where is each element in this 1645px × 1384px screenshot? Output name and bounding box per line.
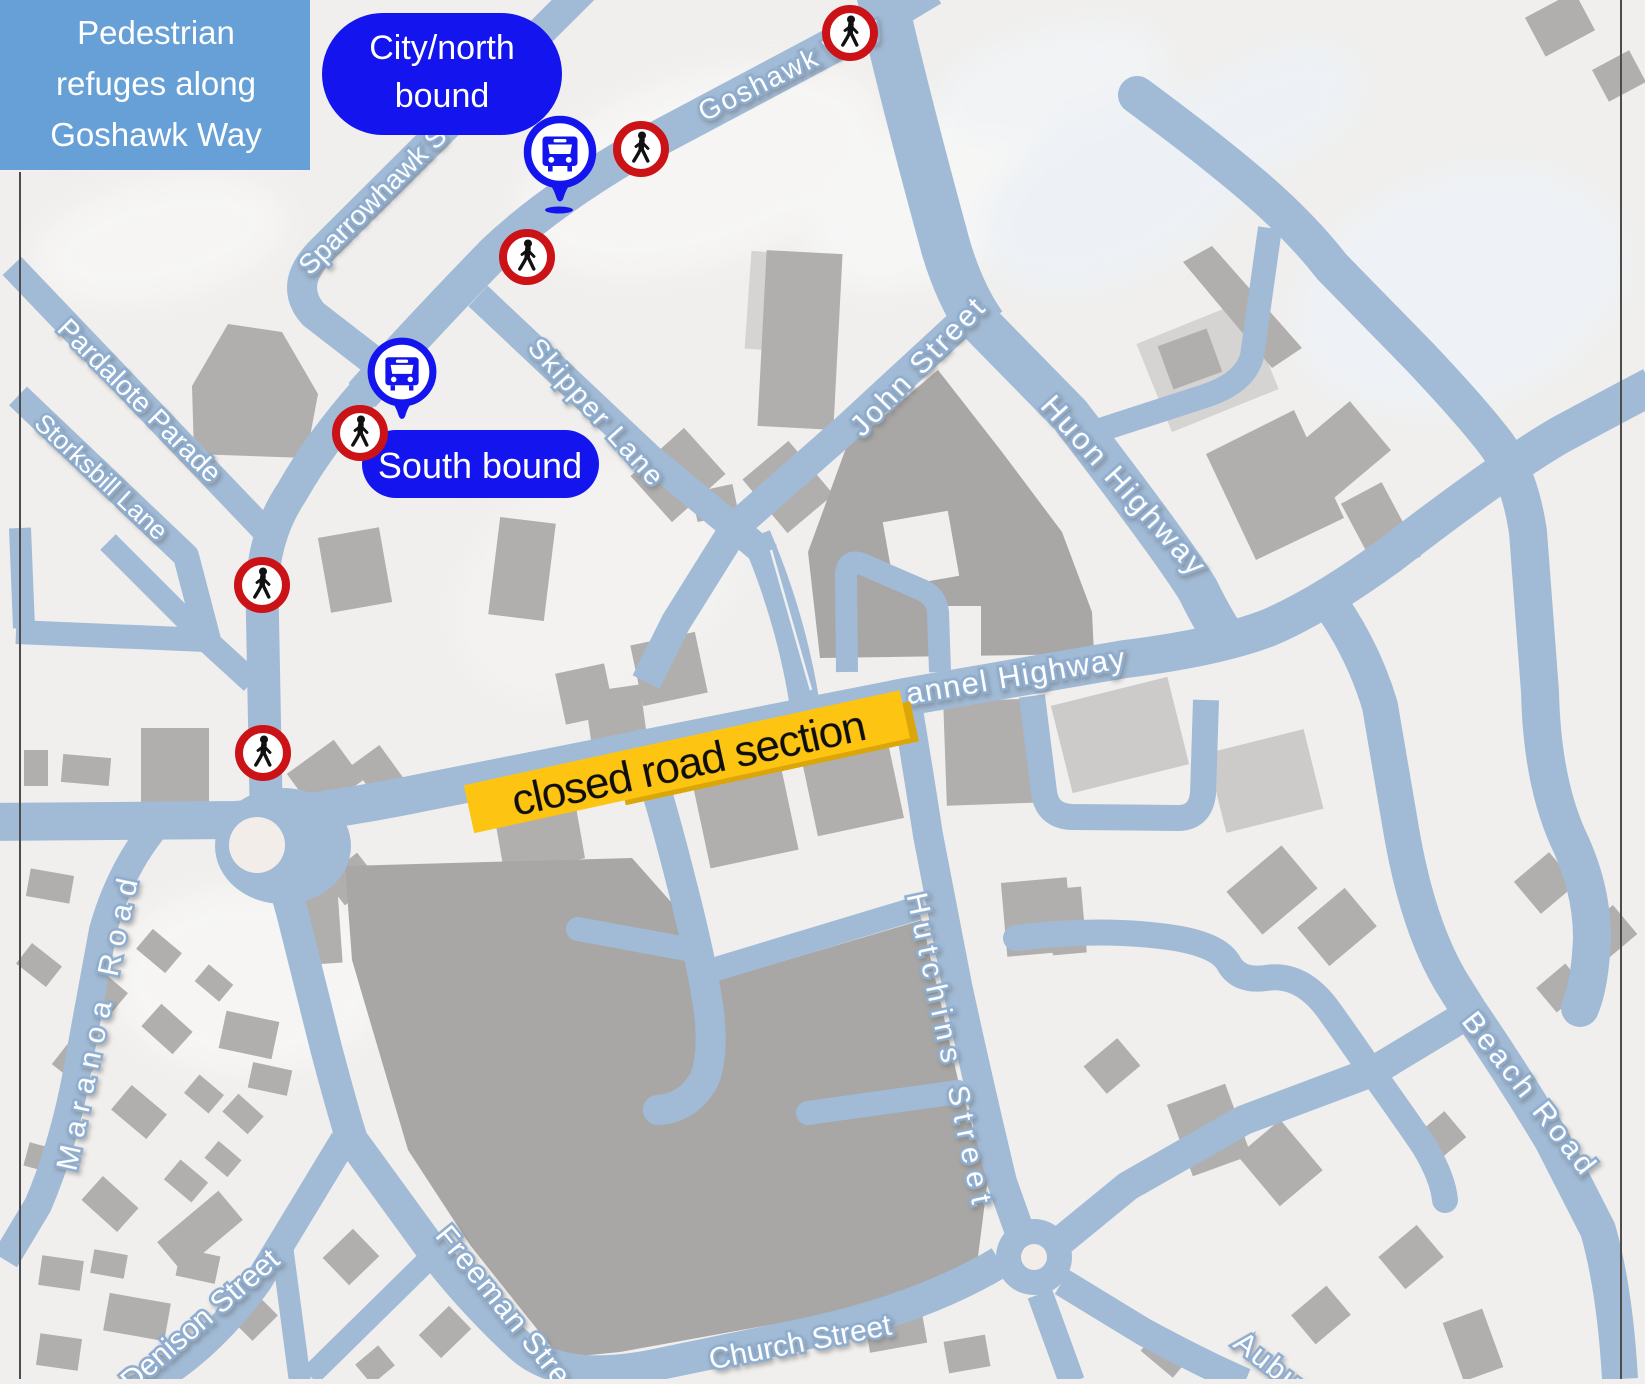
svg-text:City/north: City/north xyxy=(369,29,515,67)
svg-text:Pedestrian: Pedestrian xyxy=(77,14,235,51)
svg-text:bound: bound xyxy=(395,77,490,115)
svg-text:Goshawk Way: Goshawk Way xyxy=(50,116,262,153)
svg-text:refuges along: refuges along xyxy=(56,65,256,102)
svg-text:South bound: South bound xyxy=(378,445,582,486)
